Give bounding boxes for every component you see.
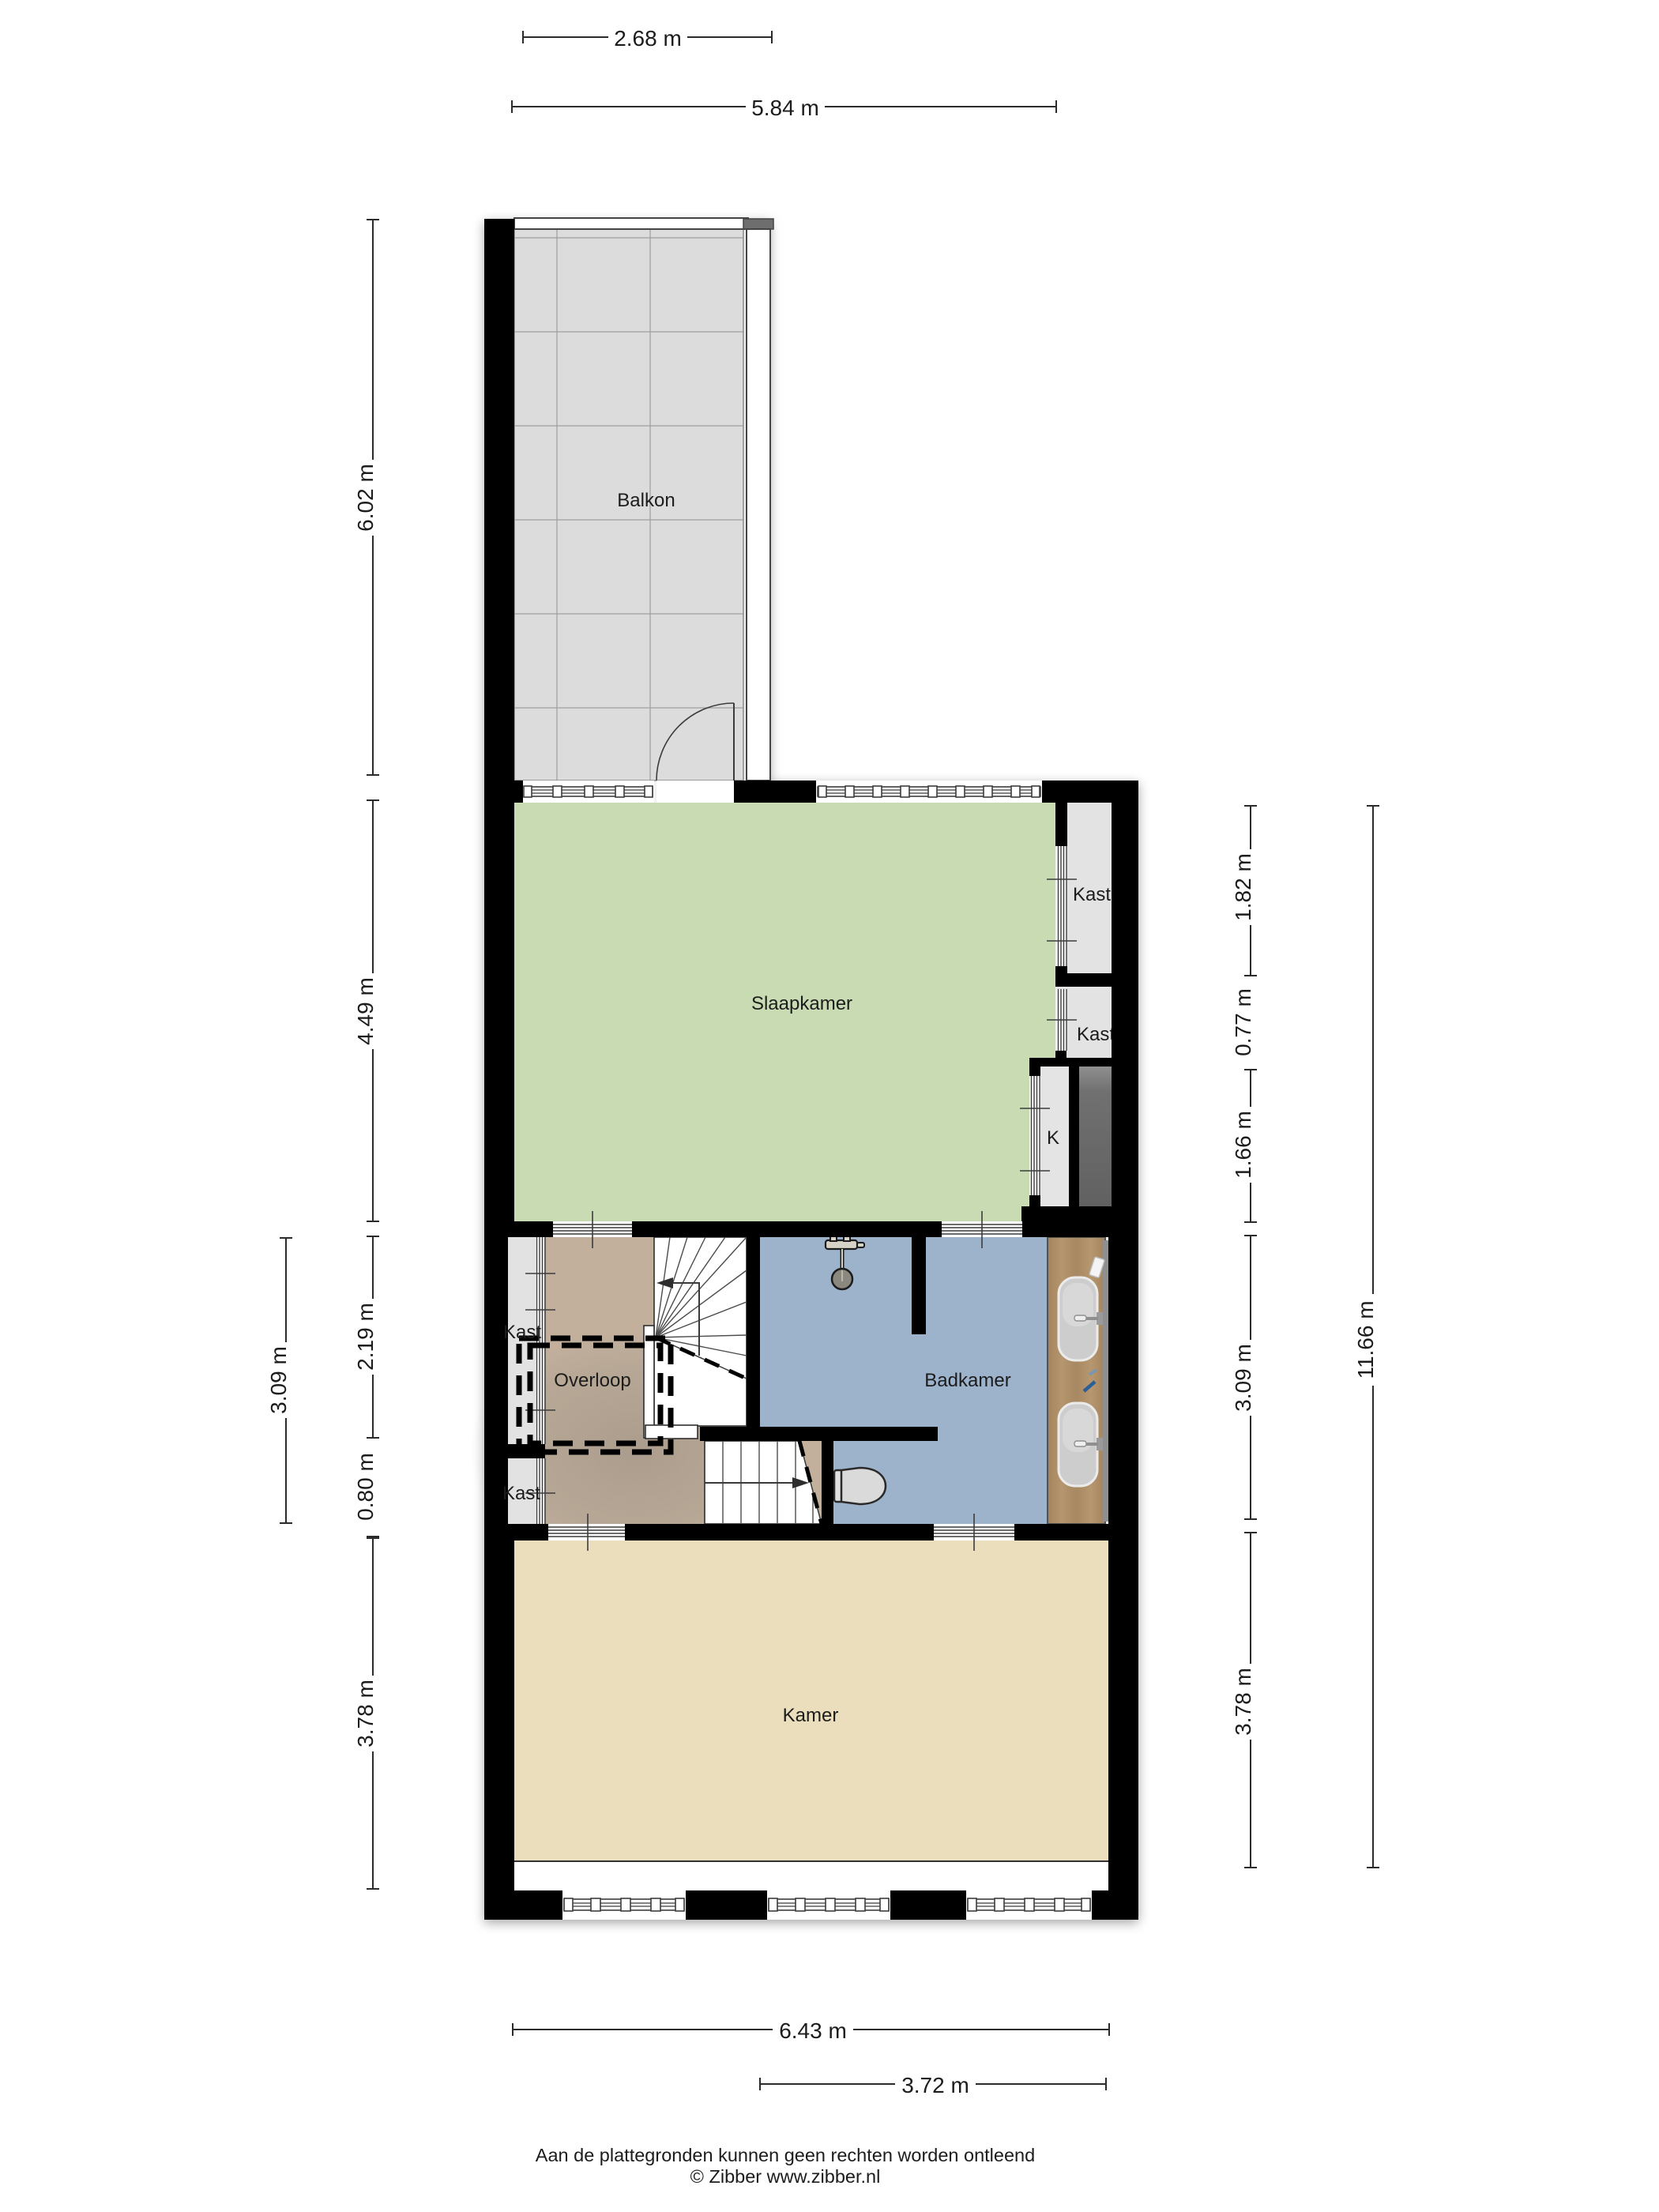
svg-text:Overloop: Overloop [554,1370,630,1391]
svg-text:Kast: Kast [1077,1024,1115,1045]
svg-text:Badkamer: Badkamer [924,1370,1010,1391]
svg-text:5.84 m: 5.84 m [751,96,819,120]
svg-text:3.78 m: 3.78 m [1231,1668,1255,1736]
svg-text:2.19 m: 2.19 m [353,1303,378,1371]
svg-text:Balkon: Balkon [617,490,675,511]
svg-text:6.43 m: 6.43 m [779,2018,847,2043]
svg-text:6.02 m: 6.02 m [353,464,378,532]
svg-text:Kast: Kast [1073,884,1111,905]
svg-text:Aan de plattegronden kunnen ge: Aan de plattegronden kunnen geen rechten… [536,2145,1035,2165]
svg-text:1.66 m: 1.66 m [1231,1111,1255,1179]
svg-text:Kamer: Kamer [783,1705,839,1726]
svg-text:2.68 m: 2.68 m [614,26,682,51]
svg-text:Slaapkamer: Slaapkamer [751,993,852,1014]
svg-text:3.09 m: 3.09 m [1231,1344,1255,1412]
svg-text:Kast: Kast [503,1322,541,1343]
svg-text:1.82 m: 1.82 m [1231,853,1255,921]
svg-text:© Zibber www.zibber.nl: © Zibber www.zibber.nl [690,2166,881,2187]
svg-text:3.72 m: 3.72 m [901,2073,969,2097]
svg-text:11.66 m: 11.66 m [1353,1300,1378,1379]
svg-text:0.80 m: 0.80 m [353,1453,378,1521]
svg-text:3.78 m: 3.78 m [353,1680,378,1747]
svg-text:4.49 m: 4.49 m [353,977,378,1045]
svg-text:Kast: Kast [502,1483,540,1504]
svg-text:K: K [1047,1127,1059,1149]
svg-text:0.77 m: 0.77 m [1231,988,1255,1056]
svg-text:3.09 m: 3.09 m [266,1346,291,1414]
